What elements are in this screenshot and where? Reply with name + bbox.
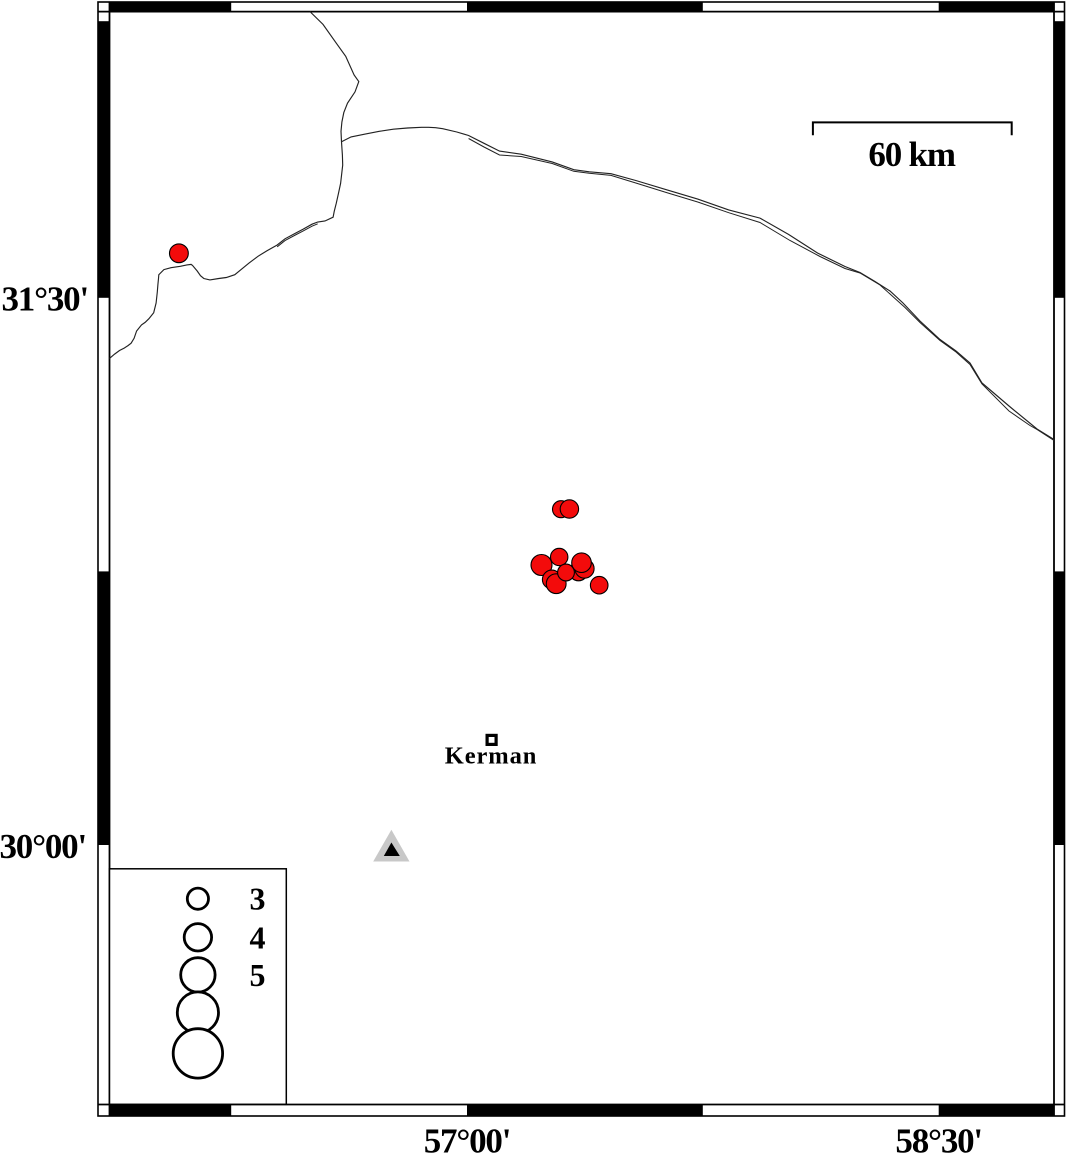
svg-text:30°00': 30°00' bbox=[0, 827, 86, 866]
svg-text:31°30': 31°30' bbox=[1, 280, 88, 319]
svg-text:3: 3 bbox=[250, 880, 266, 916]
svg-text:60 km: 60 km bbox=[868, 135, 955, 174]
svg-text:58°30': 58°30' bbox=[895, 1122, 982, 1154]
svg-text:57°00': 57°00' bbox=[424, 1122, 511, 1154]
svg-text:5: 5 bbox=[250, 957, 266, 993]
svg-text:Kerman: Kerman bbox=[445, 743, 538, 770]
svg-text:4: 4 bbox=[250, 919, 266, 955]
